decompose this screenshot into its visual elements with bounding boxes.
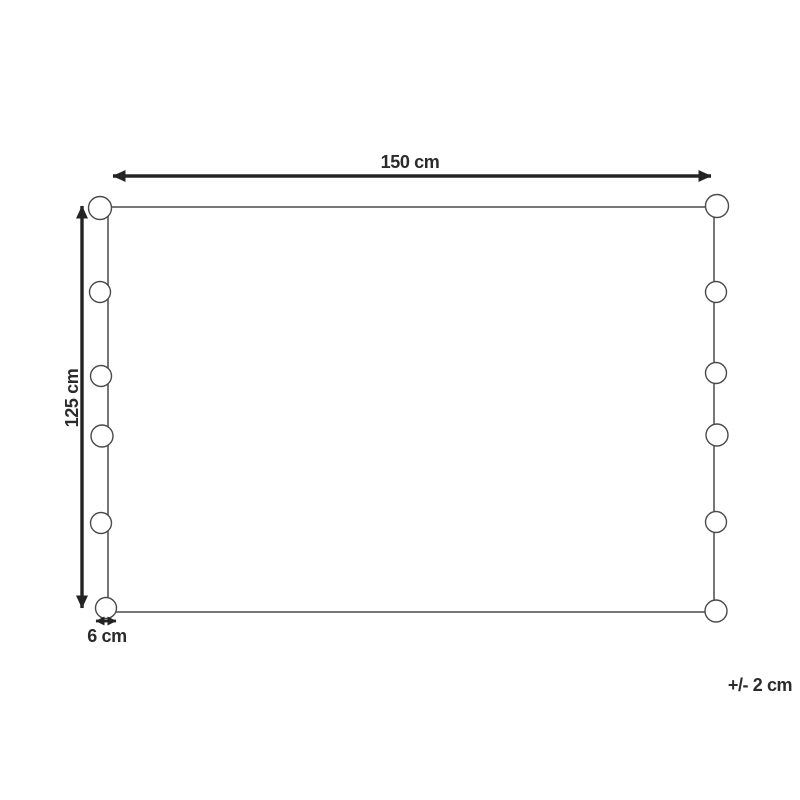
pompom-circle-right-4 [706, 424, 728, 446]
height-dimension-label: 125 cm [62, 369, 82, 428]
pompom-size-label: 6 cm [87, 626, 126, 646]
diagram-canvas: 150 cm 125 cm 6 cm +/- 2 cm [0, 0, 800, 800]
pompom-circle-left-5 [91, 513, 112, 534]
pompom-circle-left-6 [96, 598, 117, 619]
tolerance-label: +/- 2 cm [728, 675, 792, 695]
pompom-circle-right-3 [706, 363, 727, 384]
pompom-circle-right-2 [706, 282, 727, 303]
pompom-circle-right-1 [706, 195, 729, 218]
blanket-outline [108, 207, 714, 612]
dimension-diagram: 150 cm 125 cm 6 cm +/- 2 cm [0, 0, 800, 800]
pompom-circle-right-5 [706, 512, 727, 533]
pompom-circle-left-1 [89, 197, 112, 220]
width-dimension-label: 150 cm [381, 152, 440, 172]
pompom-circle-left-3 [91, 366, 112, 387]
pompom-circle-left-2 [90, 282, 111, 303]
pompom-circle-left-4 [91, 425, 113, 447]
pompom-circle-right-6 [705, 600, 727, 622]
